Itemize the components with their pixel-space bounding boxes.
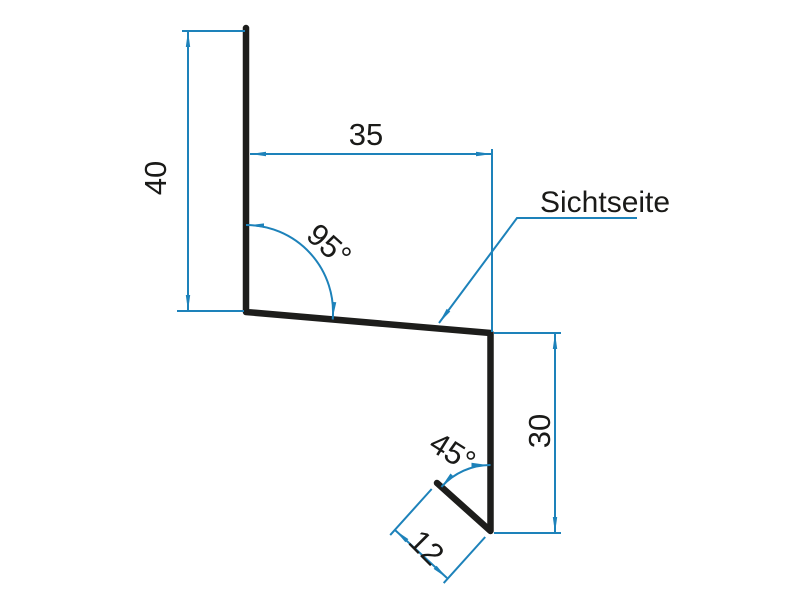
angle-95-arrow-top-icon (248, 223, 264, 227)
dim-12-extension-lower (444, 537, 486, 583)
angle-45-label: 45° (423, 425, 481, 480)
angle-95: 95° (246, 217, 358, 320)
leader-arrow-icon (439, 309, 450, 323)
angle-45-arrow-left-icon (441, 474, 453, 487)
leader-sichtseite: Sichtseite (439, 186, 670, 323)
dim-35-arrow-left-icon (250, 152, 266, 156)
dimension-40: 40 (138, 31, 245, 311)
dimension-30: 30 (494, 333, 561, 533)
drawing-canvas: 40 35 30 12 (0, 0, 800, 600)
dim-35-label: 35 (349, 117, 383, 152)
dim-30-arrow-up-icon (553, 333, 557, 349)
angle-95-label: 95° (300, 217, 358, 274)
dim-35-arrow-right-icon (476, 152, 492, 156)
dimension-12: 12 (390, 489, 485, 583)
dim-40-arrow-down-icon (186, 295, 190, 311)
dim-40-label: 40 (138, 161, 173, 195)
dim-30-arrow-down-icon (553, 517, 557, 533)
dim-12-label: 12 (402, 523, 451, 572)
leader-line (439, 218, 637, 323)
dim-12-arrow-upleft-icon (395, 530, 408, 542)
dim-12-arrow-downright-icon (434, 566, 447, 578)
angle-45: 45° (423, 425, 490, 487)
dim-30-label: 30 (522, 414, 557, 448)
dim-40-arrow-up-icon (186, 31, 190, 47)
leader-label: Sichtseite (540, 186, 670, 219)
profile-drawing-svg: 40 35 30 12 (0, 0, 800, 600)
